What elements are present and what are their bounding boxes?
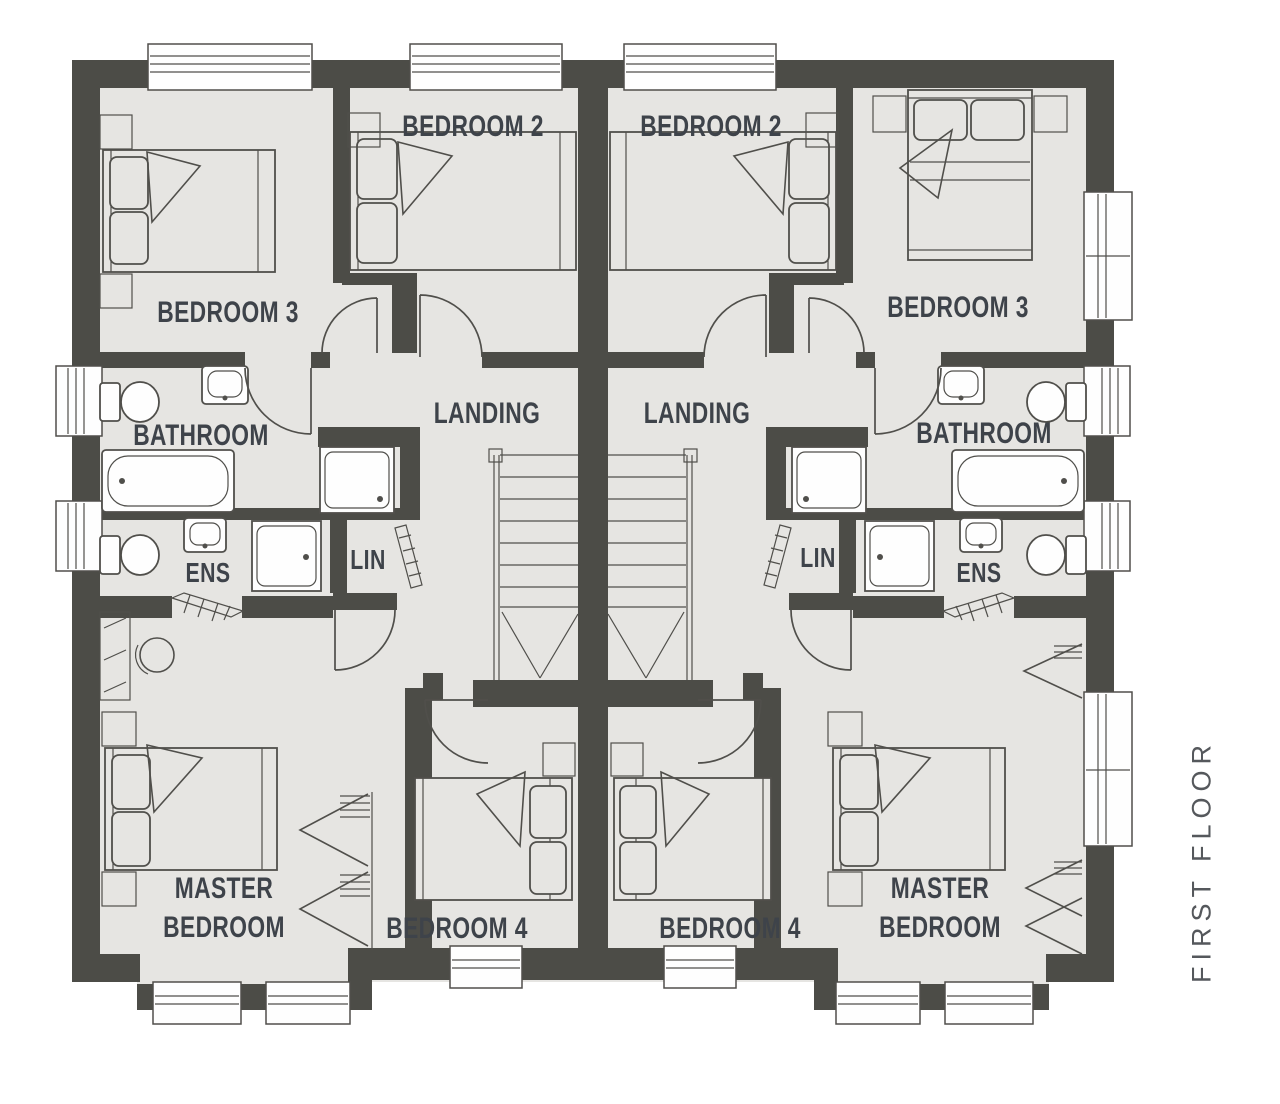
window [148,44,312,90]
room-label-bedroom4-right: BEDROOM 4 [659,912,801,946]
room-label-master-left: MASTER BEDROOM [163,869,285,947]
room-label-ens-left: ENS [186,557,231,589]
room-label-bedroom4-left: BEDROOM 4 [386,912,528,946]
room-label-lin-left: LIN [350,544,385,576]
room-label-master-right-line2: BEDROOM [879,908,1001,947]
floor-annotation: FIRST FLOOR [1187,739,1218,983]
room-label-master-left-line2: BEDROOM [163,908,285,947]
room-label-ens-right: ENS [957,557,1002,589]
room-label-bedroom3-right: BEDROOM 3 [887,291,1029,325]
room-label-lin-right: LIN [800,542,835,574]
room-label-master-right: MASTER BEDROOM [879,869,1001,947]
room-label-landing-right: LANDING [644,397,751,431]
room-label-bedroom2-right: BEDROOM 2 [640,110,782,144]
room-label-bedroom2-left: BEDROOM 2 [402,110,544,144]
room-label-landing-left: LANDING [434,397,541,431]
room-label-master-right-line1: MASTER [879,869,1001,908]
room-label-master-left-line1: MASTER [163,869,285,908]
room-label-bathroom-right: BATHROOM [916,417,1052,451]
room-label-bedroom3-left: BEDROOM 3 [157,296,299,330]
floor-plan: BEDROOM 3 BEDROOM 2 BEDROOM 2 BEDROOM 3 … [0,0,1280,1104]
room-label-bathroom-left: BATHROOM [133,419,269,453]
window [1084,192,1132,320]
window [1084,692,1132,846]
